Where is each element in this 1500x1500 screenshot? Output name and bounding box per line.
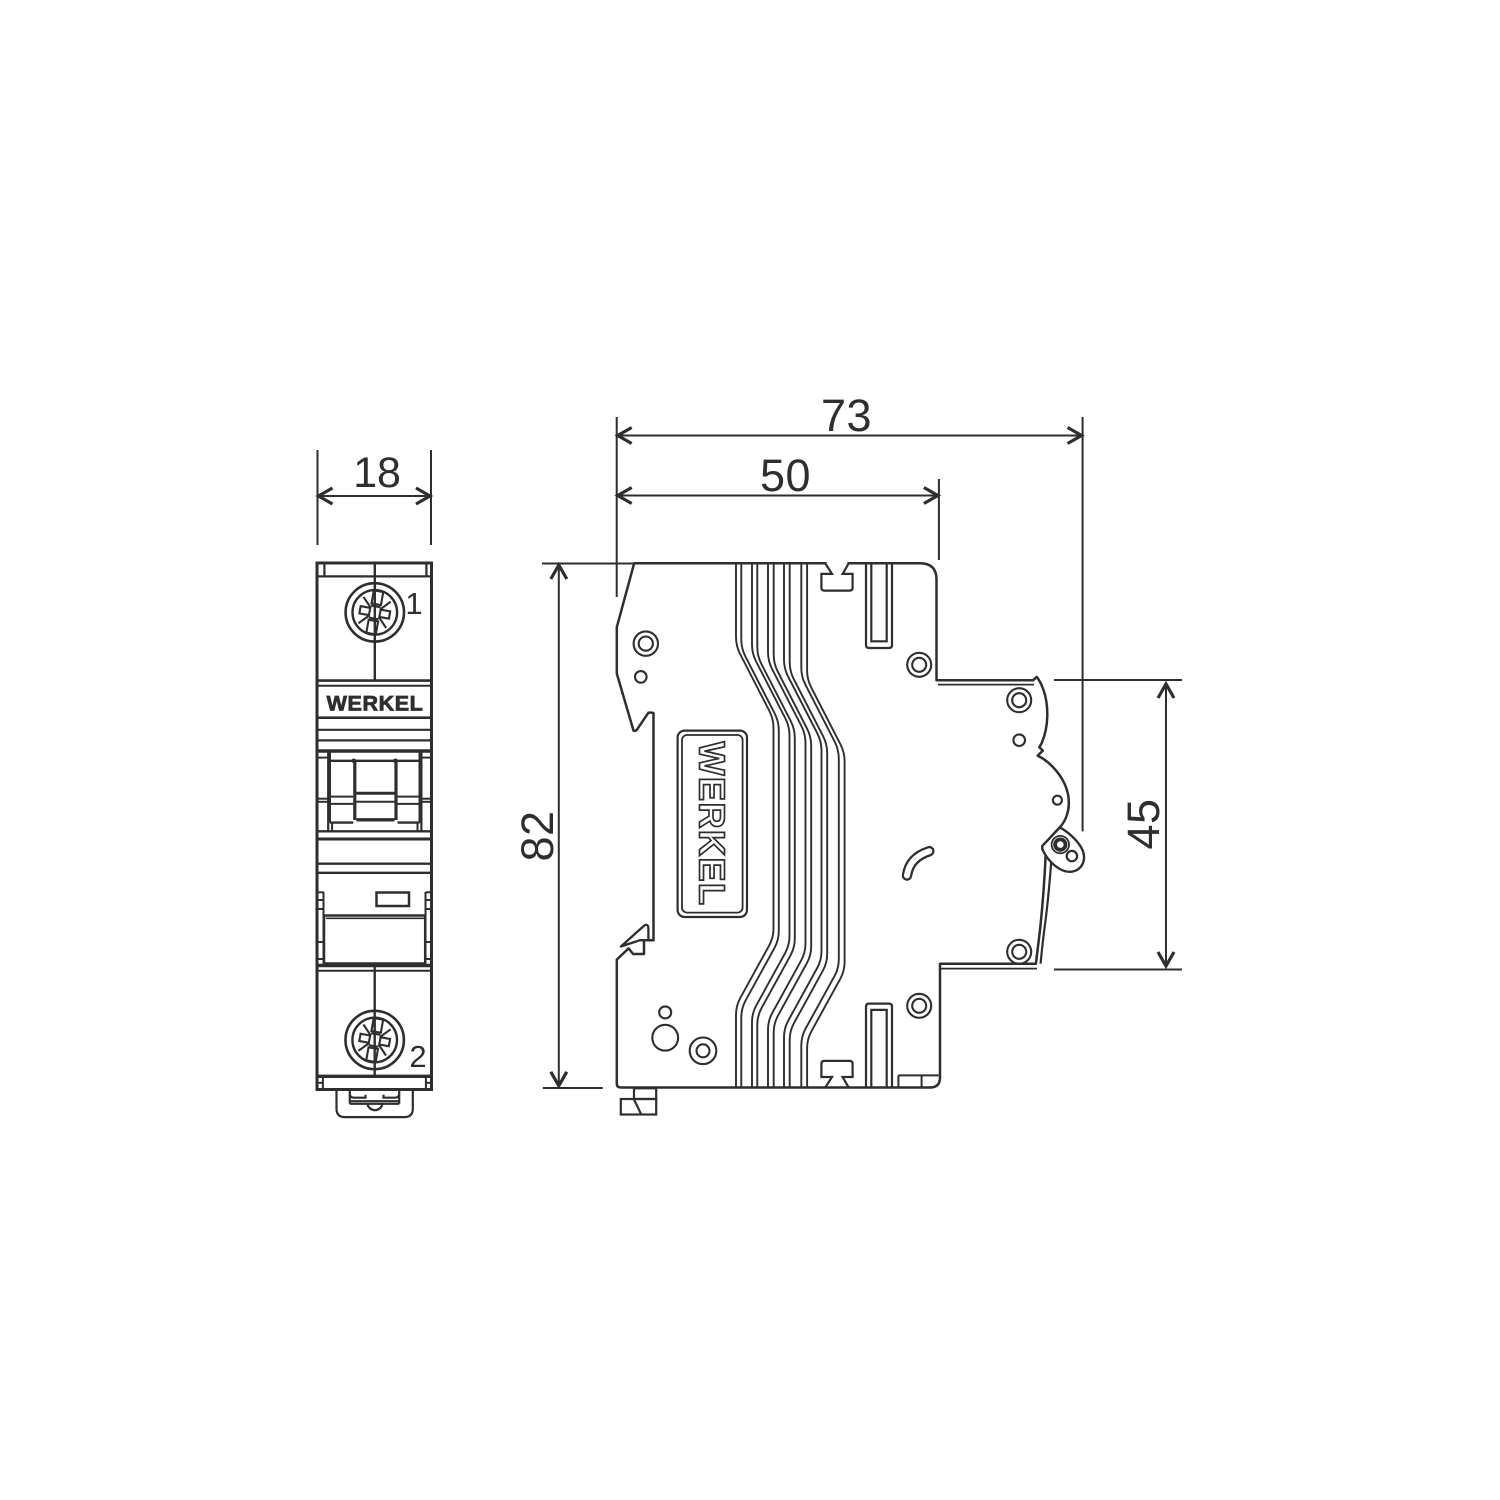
svg-text:WERKEL: WERKEL	[691, 742, 732, 907]
svg-text:18: 18	[353, 449, 401, 497]
svg-text:45: 45	[1118, 798, 1169, 849]
svg-text:50: 50	[760, 450, 811, 501]
svg-text:73: 73	[821, 390, 872, 441]
svg-text:WERKEL: WERKEL	[327, 692, 424, 716]
svg-text:2: 2	[409, 1039, 426, 1074]
svg-text:1: 1	[405, 586, 422, 621]
svg-text:82: 82	[512, 810, 563, 861]
